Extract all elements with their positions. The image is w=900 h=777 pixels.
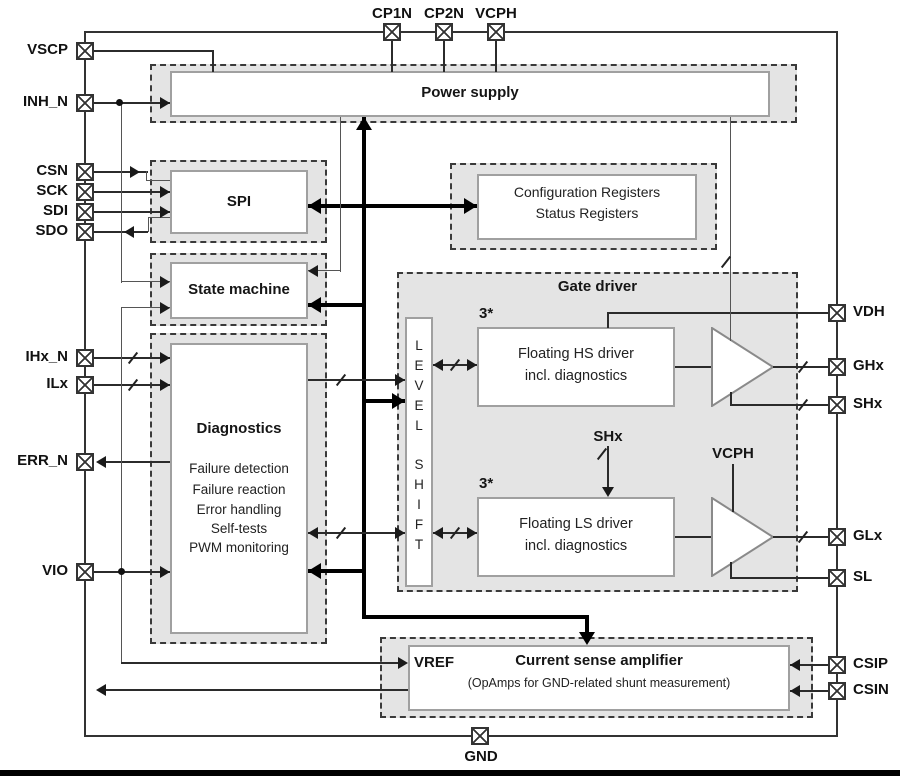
pin-symbol-icon: [828, 304, 846, 322]
spi-title: SPI: [170, 193, 308, 210]
pin-symbol-icon: [828, 682, 846, 700]
pin-symbol-icon: [76, 163, 94, 181]
pin-label-csin: CSIN: [853, 681, 889, 698]
block-diagram: Power supply SPI Configuration Registers…: [0, 0, 900, 777]
state-machine-title: State machine: [170, 281, 308, 298]
pin-symbol-icon: [828, 569, 846, 587]
pin-symbol-icon: [828, 396, 846, 414]
wire: [443, 41, 445, 72]
junction-dot: [118, 568, 125, 575]
arrow-left-icon: [433, 359, 443, 371]
arrow-right-icon: [160, 566, 170, 578]
hs-buffer-triangle: [711, 327, 775, 407]
pin-label-vscp: VSCP: [0, 41, 68, 58]
wire: [94, 571, 170, 573]
level-shift-letters: LEVEL: [414, 336, 425, 436]
wire: [121, 103, 122, 283]
arrow-right-icon: [160, 276, 170, 288]
pin-label-ilx: ILx: [0, 375, 68, 392]
shx-internal-label: SHx: [578, 428, 638, 445]
pin-label-csn: CSN: [0, 162, 68, 179]
arrow-left-icon: [96, 684, 106, 696]
wire: [308, 379, 405, 381]
wire: [121, 307, 122, 573]
wire: [495, 41, 497, 72]
current-sense-title: Current sense amplifier: [408, 652, 790, 669]
pin-label-vcph: VCPH: [466, 5, 526, 22]
pin-label-gnd: GND: [446, 748, 516, 765]
pin-symbol-icon: [76, 563, 94, 581]
arrow-right-icon: [464, 198, 477, 214]
wire: [391, 41, 393, 72]
ls-driver-line1: Floating LS driver: [477, 516, 675, 532]
pin-symbol-icon: [435, 23, 453, 41]
pin-symbol-icon: [76, 42, 94, 60]
arrow-right-icon: [160, 186, 170, 198]
page-divider: [0, 770, 900, 776]
arrow-right-icon: [395, 374, 405, 386]
wire: [94, 102, 170, 104]
wire: [94, 191, 170, 193]
ls-multiplier-label: 3*: [479, 475, 519, 492]
arrow-down-icon: [579, 632, 595, 645]
arrow-down-icon: [602, 487, 614, 497]
arrow-right-icon: [398, 657, 408, 669]
pin-symbol-icon: [76, 223, 94, 241]
wire: [608, 312, 828, 314]
arrow-left-icon: [790, 659, 800, 671]
pin-label-inh-n: INH_N: [0, 93, 68, 110]
pin-symbol-icon: [828, 528, 846, 546]
arrow-right-icon: [160, 352, 170, 364]
gate-driver-title: Gate driver: [397, 278, 798, 295]
diagnostics-item: PWM monitoring: [170, 540, 308, 555]
pin-label-vdh: VDH: [853, 303, 885, 320]
pin-label-shx: SHx: [853, 395, 882, 412]
level-shift-letters: SHIFT: [414, 455, 425, 555]
hs-multiplier-label: 3*: [479, 305, 519, 322]
level-shift-word1: LEVEL: [405, 336, 433, 436]
arrow-up-icon: [356, 117, 372, 130]
pin-symbol-icon: [76, 183, 94, 201]
arrow-left-icon: [96, 456, 106, 468]
wire: [730, 577, 828, 579]
pin-label-err-n: ERR_N: [0, 452, 68, 469]
diagnostics-item: Error handling: [170, 502, 308, 517]
wire: [607, 446, 609, 491]
registers-line1: Configuration Registers: [477, 184, 697, 200]
wire: [212, 50, 214, 72]
main-bus: [362, 615, 589, 619]
current-sense-subtitle: (OpAmps for GND-related shunt measuremen…: [408, 676, 790, 690]
diagnostics-item: Failure reaction: [170, 482, 308, 497]
pin-label-sck: SCK: [0, 182, 68, 199]
arrow-left-icon: [308, 527, 318, 539]
diagnostics-title: Diagnostics: [170, 420, 308, 437]
arrow-left-icon: [308, 297, 321, 313]
wire: [340, 117, 341, 272]
wire: [121, 572, 122, 664]
wire: [675, 366, 711, 368]
arrow-right-icon: [395, 527, 405, 539]
wire: [94, 211, 170, 213]
pin-label-csip: CSIP: [853, 655, 888, 672]
arrow-right-icon: [130, 166, 140, 178]
hs-driver-line2: incl. diagnostics: [477, 368, 675, 384]
arrow-right-icon: [160, 302, 170, 314]
wire: [607, 312, 609, 328]
pin-symbol-icon: [487, 23, 505, 41]
wire: [730, 562, 732, 578]
pin-label-cp1n: CP1N: [362, 5, 422, 22]
wire: [732, 464, 734, 512]
hs-driver-box: [477, 327, 675, 407]
pin-label-vio: VIO: [0, 562, 68, 579]
arrow-right-icon: [160, 206, 170, 218]
arrow-right-icon: [160, 97, 170, 109]
spi-registers-bus: [308, 204, 477, 208]
pin-label-sl: SL: [853, 568, 872, 585]
pin-label-ihx-n: IHx_N: [0, 348, 68, 365]
arrow-right-icon: [467, 359, 477, 371]
level-shift-word2: SHIFT: [405, 455, 433, 555]
wire: [730, 117, 731, 341]
pin-label-ghx: GHx: [853, 357, 884, 374]
wire: [102, 461, 170, 463]
arrow-right-icon: [392, 393, 405, 409]
pin-symbol-icon: [76, 376, 94, 394]
pin-label-sdo: SDO: [0, 222, 68, 239]
pin-symbol-icon: [76, 203, 94, 221]
hs-driver-line1: Floating HS driver: [477, 346, 675, 362]
ls-buffer-triangle: [711, 497, 775, 577]
junction-dot: [116, 99, 123, 106]
ls-driver-line2: incl. diagnostics: [477, 538, 675, 554]
wire: [121, 662, 404, 664]
arrow-left-icon: [308, 265, 318, 277]
wire: [102, 689, 408, 691]
arrow-left-icon: [308, 198, 321, 214]
pin-label-glx: GLx: [853, 527, 882, 544]
power-supply-title: Power supply: [170, 84, 770, 101]
pin-symbol-icon: [471, 727, 489, 745]
registers-line2: Status Registers: [477, 205, 697, 221]
pin-symbol-icon: [828, 656, 846, 674]
arrow-right-icon: [467, 527, 477, 539]
arrow-left-icon: [124, 226, 134, 238]
pin-symbol-icon: [76, 349, 94, 367]
arrow-right-icon: [160, 379, 170, 391]
diagnostics-item: Self-tests: [170, 521, 308, 536]
main-bus: [362, 117, 366, 619]
pin-label-cp2n: CP2N: [414, 5, 474, 22]
arrow-left-icon: [308, 563, 321, 579]
wire: [730, 404, 828, 406]
arrow-left-icon: [790, 685, 800, 697]
ls-driver-box: [477, 497, 675, 577]
arrow-left-icon: [433, 527, 443, 539]
wire: [146, 180, 170, 181]
pin-label-sdi: SDI: [0, 202, 68, 219]
pin-symbol-icon: [828, 358, 846, 376]
wire: [94, 50, 213, 52]
pin-symbol-icon: [383, 23, 401, 41]
pin-symbol-icon: [76, 94, 94, 112]
pin-symbol-icon: [76, 453, 94, 471]
wire: [148, 217, 149, 232]
wire: [308, 532, 405, 534]
wire: [675, 536, 711, 538]
diagnostics-item: Failure detection: [170, 461, 308, 476]
vcph-internal-label: VCPH: [703, 445, 763, 462]
